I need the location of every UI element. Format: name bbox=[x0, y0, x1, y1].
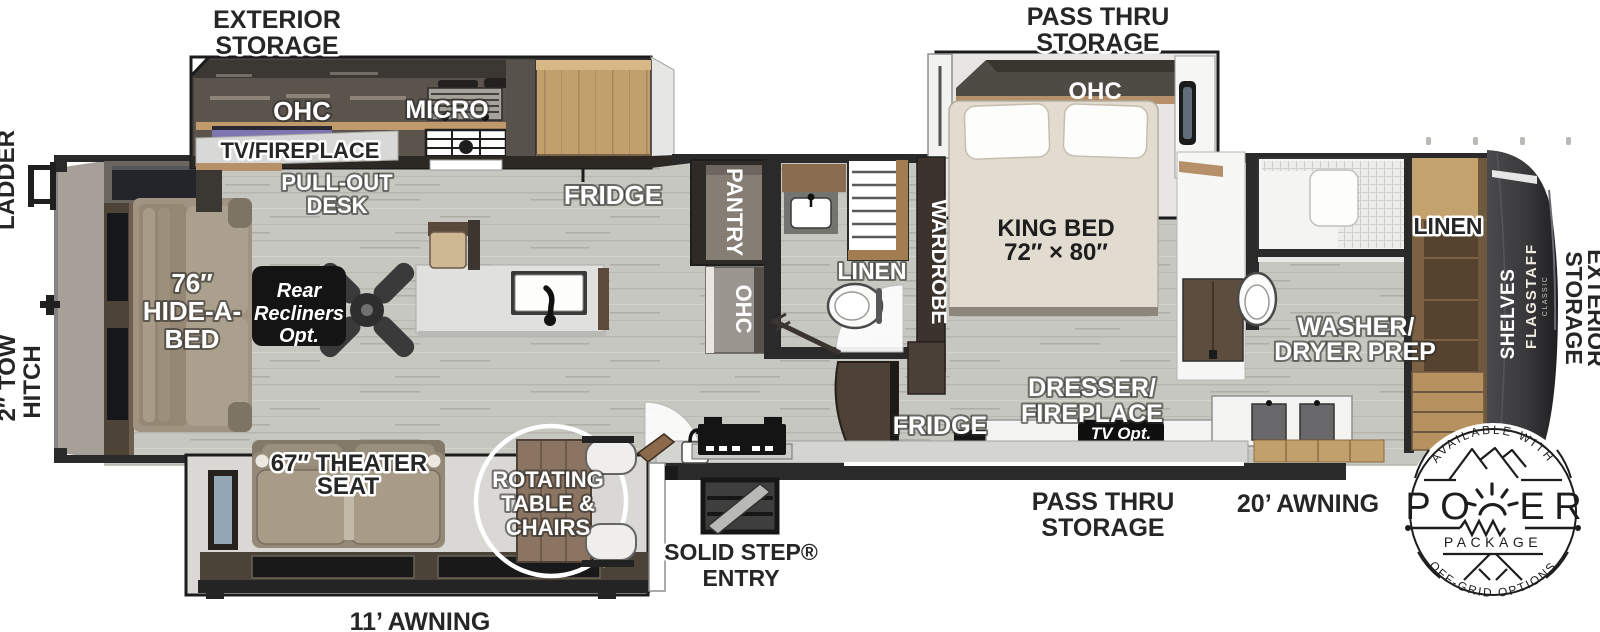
svg-text:PASS THRU: PASS THRU bbox=[1032, 488, 1175, 516]
svg-text:DESK: DESK bbox=[306, 193, 367, 218]
svg-text:FRIDGE: FRIDGE bbox=[893, 412, 987, 440]
svg-text:OHC: OHC bbox=[731, 285, 756, 334]
svg-text:P: P bbox=[1405, 486, 1430, 528]
svg-text:DRYER PREP: DRYER PREP bbox=[1274, 338, 1436, 366]
svg-text:STORAGE: STORAGE bbox=[1036, 29, 1159, 57]
svg-text:OHC: OHC bbox=[273, 96, 331, 126]
svg-text:OHC: OHC bbox=[1068, 78, 1121, 105]
svg-text:20’ AWNING: 20’ AWNING bbox=[1237, 490, 1379, 518]
svg-text:11’ AWNING: 11’ AWNING bbox=[350, 608, 491, 632]
svg-text:FRIDGE: FRIDGE bbox=[564, 180, 662, 210]
svg-text:PANTRY: PANTRY bbox=[722, 168, 747, 256]
svg-text:PULL-OUT: PULL-OUT bbox=[281, 170, 393, 195]
svg-text:BED: BED bbox=[165, 324, 220, 354]
svg-text:STORAGE: STORAGE bbox=[1561, 251, 1587, 364]
svg-text:PACKAGE: PACKAGE bbox=[1444, 534, 1542, 550]
svg-text:CLASSIC: CLASSIC bbox=[1542, 276, 1549, 316]
svg-text:FLAGSTAFF: FLAGSTAFF bbox=[1523, 243, 1540, 349]
svg-text:R: R bbox=[1554, 486, 1581, 528]
svg-text:CHAIRS: CHAIRS bbox=[506, 515, 590, 540]
svg-text:SOLID STEP®: SOLID STEP® bbox=[664, 539, 818, 565]
svg-text:WARDROBE: WARDROBE bbox=[927, 200, 950, 325]
svg-text:STORAGE: STORAGE bbox=[1041, 514, 1164, 542]
svg-text:HITCH: HITCH bbox=[19, 345, 46, 418]
svg-text:LINEN: LINEN bbox=[1414, 213, 1483, 239]
svg-text:Rear: Rear bbox=[277, 280, 323, 302]
svg-text:STORAGE: STORAGE bbox=[215, 32, 338, 60]
svg-text:Recliners: Recliners bbox=[254, 303, 344, 325]
svg-text:E: E bbox=[1519, 486, 1544, 528]
svg-text:ROTATING: ROTATING bbox=[492, 467, 604, 492]
svg-text:HIDE-A-: HIDE-A- bbox=[143, 296, 241, 326]
svg-text:76″: 76″ bbox=[171, 268, 212, 298]
svg-text:PASS THRU: PASS THRU bbox=[1027, 3, 1170, 31]
svg-text:2″ TOW: 2″ TOW bbox=[0, 334, 21, 421]
svg-text:DRESSER/: DRESSER/ bbox=[1028, 374, 1156, 402]
svg-text:MICRO: MICRO bbox=[405, 96, 488, 124]
svg-text:FIREPLACE: FIREPLACE bbox=[1021, 400, 1163, 428]
svg-text:LADDER: LADDER bbox=[0, 130, 20, 230]
svg-text:LINEN: LINEN bbox=[838, 258, 907, 284]
svg-text:KING BED: KING BED bbox=[997, 215, 1114, 242]
svg-text:TV/FIREPLACE: TV/FIREPLACE bbox=[221, 138, 380, 163]
svg-text:SEAT: SEAT bbox=[317, 473, 380, 500]
svg-text:72″ × 80″: 72″ × 80″ bbox=[1004, 239, 1108, 266]
svg-text:TABLE &: TABLE & bbox=[501, 491, 595, 516]
svg-text:WASHER/: WASHER/ bbox=[1298, 313, 1415, 341]
svg-text:ENTRY: ENTRY bbox=[702, 565, 779, 591]
svg-text:EXTERIOR: EXTERIOR bbox=[213, 6, 341, 34]
svg-text:SHELVES: SHELVES bbox=[1498, 269, 1519, 360]
svg-text:Opt.: Opt. bbox=[279, 325, 319, 347]
